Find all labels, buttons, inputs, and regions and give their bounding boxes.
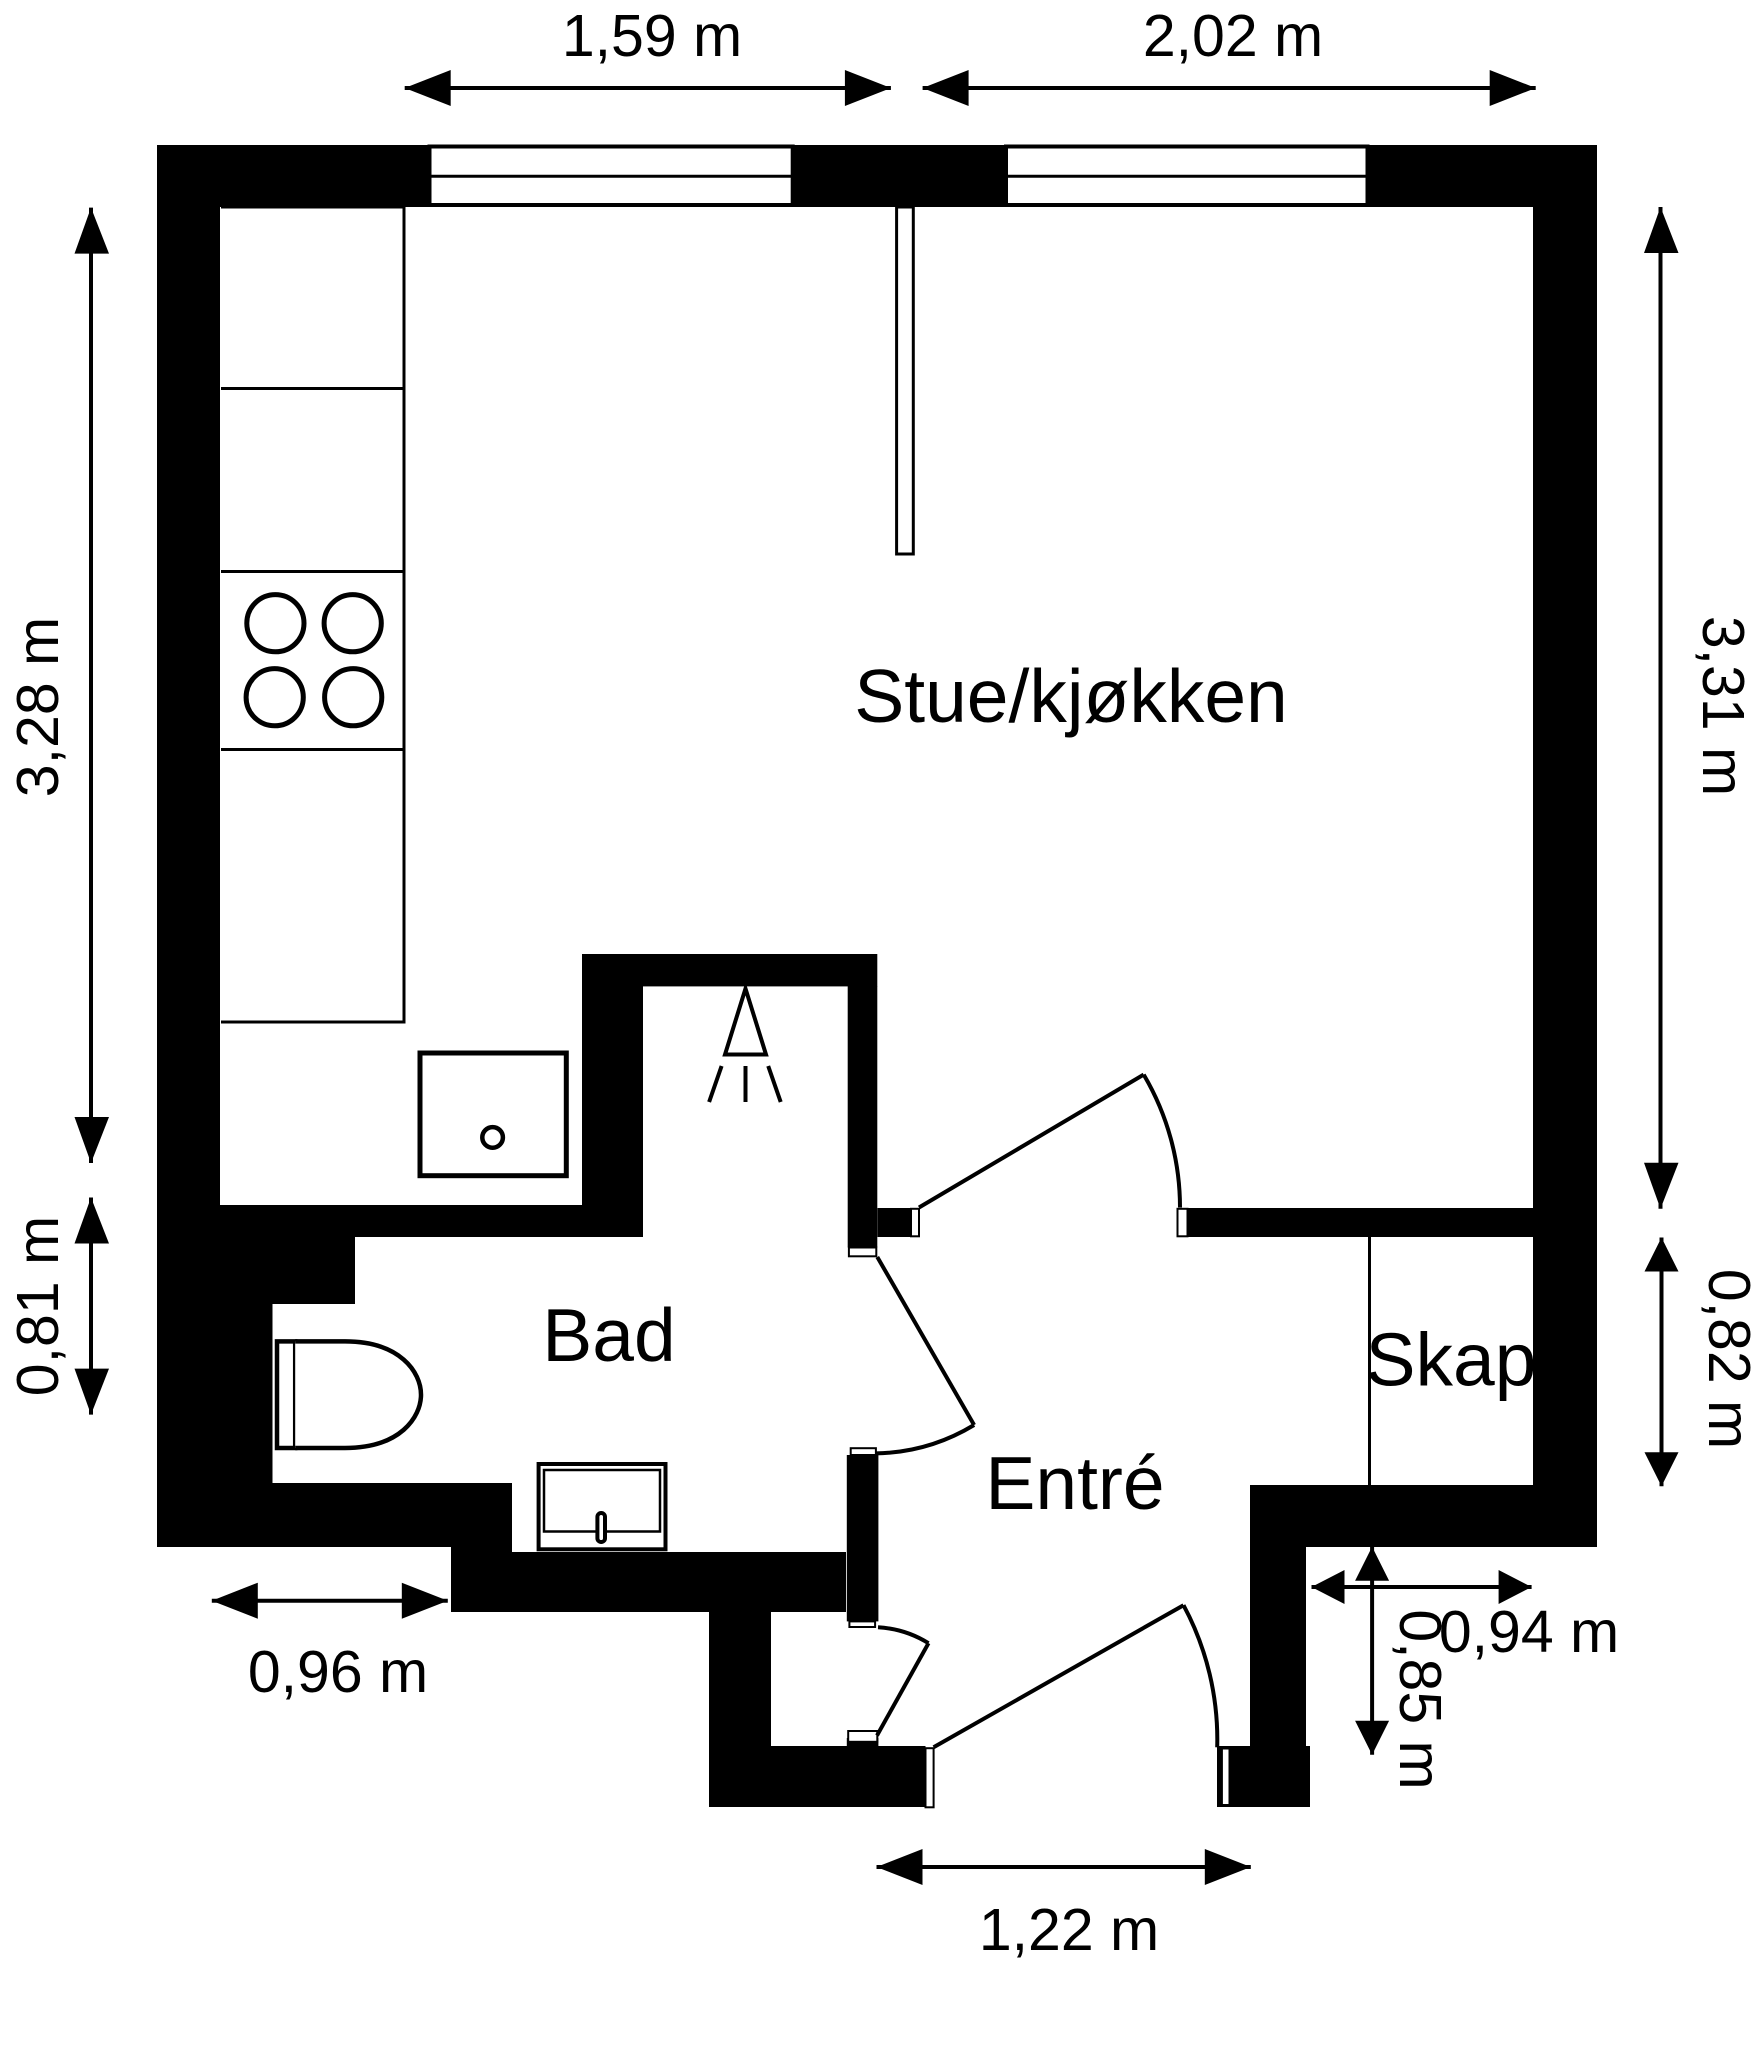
svg-text:0,94 m: 0,94 m <box>1439 1599 1619 1665</box>
svg-text:3,31 m: 3,31 m <box>1690 616 1756 796</box>
svg-text:Stue/kjøkken: Stue/kjøkken <box>854 654 1288 738</box>
svg-text:Skap: Skap <box>1366 1318 1537 1402</box>
svg-text:0,81 m: 0,81 m <box>5 1216 71 1396</box>
svg-text:Entré: Entré <box>985 1441 1164 1525</box>
svg-text:Bad: Bad <box>542 1293 675 1377</box>
svg-text:0,82 m: 0,82 m <box>1696 1269 1760 1449</box>
svg-text:1,22 m: 1,22 m <box>979 1897 1159 1963</box>
svg-text:2,02 m: 2,02 m <box>1143 3 1323 69</box>
svg-text:0,96 m: 0,96 m <box>248 1639 428 1705</box>
svg-text:1,59 m: 1,59 m <box>562 3 742 69</box>
svg-text:3,28 m: 3,28 m <box>5 617 71 797</box>
svg-text:0,85 m: 0,85 m <box>1387 1609 1453 1789</box>
